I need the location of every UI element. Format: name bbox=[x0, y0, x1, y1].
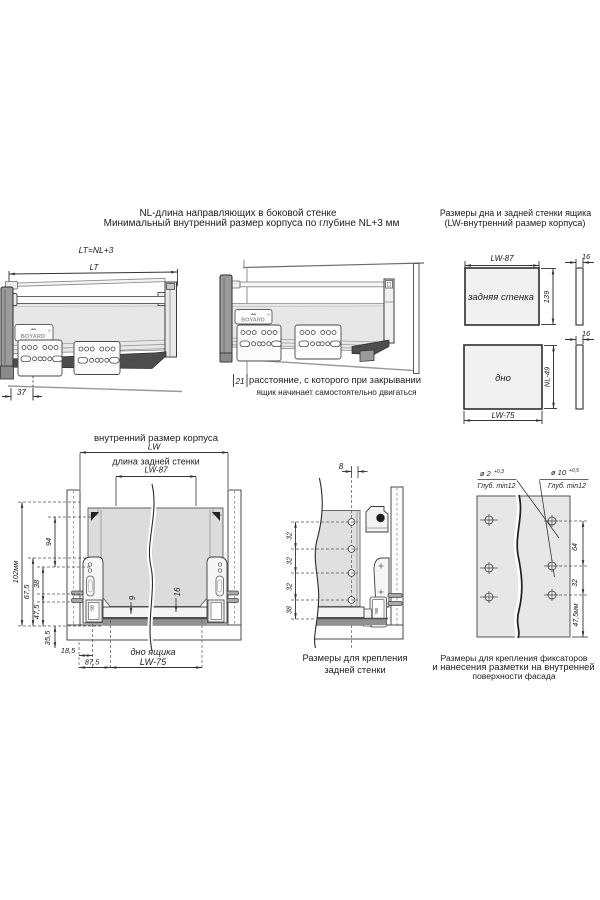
svg-text:67,5: 67,5 bbox=[22, 584, 31, 599]
svg-text:Минимальный внутренний размер: Минимальный внутренний размер корпуса по… bbox=[104, 217, 400, 229]
svg-text:32: 32 bbox=[287, 557, 294, 565]
svg-text:LW-87: LW-87 bbox=[490, 254, 514, 263]
svg-text:+0,3: +0,3 bbox=[494, 469, 504, 475]
svg-text:ø 10: ø 10 bbox=[551, 468, 567, 477]
svg-text:ø 2: ø 2 bbox=[480, 469, 492, 478]
svg-text:NL-49: NL-49 bbox=[543, 366, 552, 387]
svg-text:задняя стенка: задняя стенка bbox=[467, 292, 534, 303]
svg-text:Глуб. min12: Глуб. min12 bbox=[478, 482, 516, 490]
svg-text:32: 32 bbox=[287, 532, 294, 540]
svg-text:Размеры дна и задней стенки ящ: Размеры дна и задней стенки ящика bbox=[440, 208, 591, 218]
svg-text:Глуб. min12: Глуб. min12 bbox=[548, 482, 586, 490]
svg-text:21: 21 bbox=[235, 377, 245, 386]
svg-text:LT=NL+3: LT=NL+3 bbox=[79, 245, 114, 255]
svg-text:35,5: 35,5 bbox=[43, 630, 52, 645]
svg-text:LW-87: LW-87 bbox=[144, 466, 168, 475]
svg-text:LW-75: LW-75 bbox=[140, 657, 167, 667]
svg-text:47,5мм: 47,5мм bbox=[573, 603, 580, 626]
svg-text:9: 9 bbox=[128, 595, 137, 600]
svg-text:LW: LW bbox=[148, 442, 161, 452]
svg-text:16: 16 bbox=[582, 252, 591, 261]
svg-text:поверхности фасада: поверхности фасада bbox=[472, 671, 556, 681]
svg-text:(LW-внутренний размер корпуса): (LW-внутренний размер корпуса) bbox=[445, 218, 586, 228]
svg-text:SB: SB bbox=[374, 608, 379, 614]
svg-text:BOYARD: BOYARD bbox=[21, 334, 45, 340]
svg-text:8: 8 bbox=[339, 462, 344, 471]
svg-text:94: 94 bbox=[44, 538, 53, 546]
svg-text:задней стенки: задней стенки bbox=[324, 665, 385, 675]
svg-text:38: 38 bbox=[32, 579, 41, 588]
svg-text:SB: SB bbox=[90, 605, 95, 611]
svg-text:дно: дно bbox=[495, 373, 511, 384]
svg-text:LW-75: LW-75 bbox=[491, 411, 515, 420]
svg-text:32: 32 bbox=[287, 583, 294, 591]
svg-text:139: 139 bbox=[542, 290, 551, 303]
svg-text:16: 16 bbox=[582, 329, 591, 338]
svg-text:18,5: 18,5 bbox=[61, 646, 76, 655]
svg-text:47,5: 47,5 bbox=[32, 604, 41, 619]
svg-text:+0,5: +0,5 bbox=[569, 468, 579, 474]
svg-text:64: 64 bbox=[572, 543, 579, 551]
svg-text:32: 32 bbox=[572, 579, 579, 587]
svg-text:BOYARD: BOYARD bbox=[241, 318, 264, 324]
svg-text:38: 38 bbox=[287, 606, 294, 614]
svg-text:102мм: 102мм bbox=[11, 561, 20, 584]
svg-text:ящик начинает самостоятельно д: ящик начинает самостоятельно двигаться bbox=[256, 388, 416, 397]
svg-text:87,5: 87,5 bbox=[85, 658, 100, 667]
svg-text:LT: LT bbox=[90, 263, 100, 272]
svg-text:дно ящика: дно ящика bbox=[130, 647, 175, 657]
svg-text:расстояние, с которого при зак: расстояние, с которого при закрывании bbox=[249, 374, 421, 385]
svg-text:Размеры для крепления: Размеры для крепления bbox=[302, 653, 407, 663]
svg-text:16: 16 bbox=[173, 587, 182, 596]
svg-text:37: 37 bbox=[17, 388, 26, 397]
